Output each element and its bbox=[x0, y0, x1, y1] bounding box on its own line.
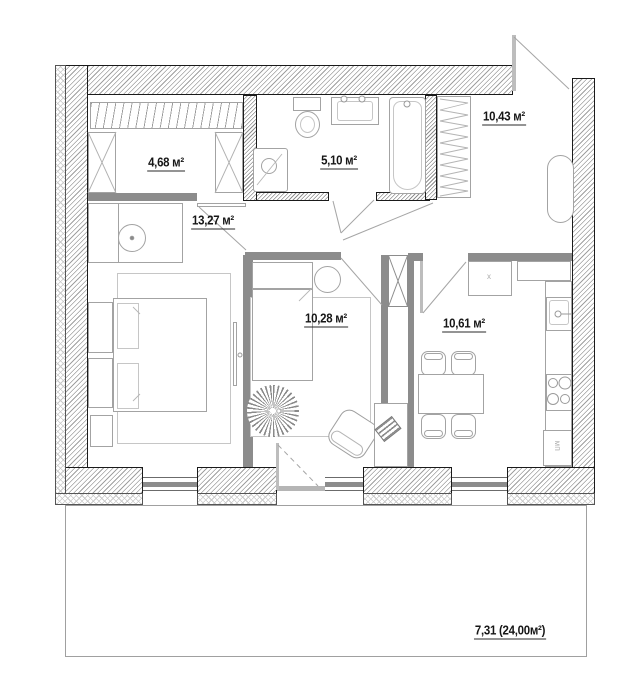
chair-4 bbox=[451, 414, 476, 439]
room-area-hallway: 10,43 м² bbox=[482, 109, 526, 126]
room-label-wardrobe: 4,68 м² bbox=[145, 155, 188, 172]
hall-closet-zigzag bbox=[438, 97, 471, 198]
wall-top bbox=[55, 65, 513, 95]
room-label-bedroom: 10,28 м² bbox=[301, 311, 351, 328]
closet-box-left bbox=[88, 132, 116, 193]
room-area-bedroom: 10,28 м² bbox=[304, 311, 348, 328]
entrance-door-leaf bbox=[512, 35, 516, 91]
bathtub-inner bbox=[393, 101, 422, 190]
partition-bath-bottom-left bbox=[256, 192, 329, 201]
room-label-kitchen: 10,61 м² bbox=[439, 316, 489, 333]
tv-panel bbox=[233, 322, 237, 386]
stool bbox=[118, 224, 146, 252]
kitchen-door-leaf bbox=[420, 261, 423, 313]
room-area-wardrobe: 4,68 м² bbox=[147, 155, 185, 172]
toilet-bowl-inner bbox=[300, 116, 315, 133]
room-area-bathroom: 5,10 м² bbox=[320, 153, 358, 170]
washbasin-inner bbox=[337, 101, 373, 121]
kitchen-sink-basin bbox=[549, 300, 569, 325]
balcony-door-leaf bbox=[276, 443, 279, 490]
wall-right bbox=[572, 78, 595, 505]
insulation-strip-b3 bbox=[363, 493, 452, 505]
chair-1 bbox=[421, 351, 446, 376]
stove bbox=[546, 374, 572, 411]
partition-kitchen-top-stub bbox=[408, 253, 423, 261]
floor-plan: x МП bbox=[0, 0, 641, 700]
double-bed-pillow-1 bbox=[117, 303, 139, 349]
partition-bedroom-top bbox=[245, 252, 341, 260]
nightstand-1 bbox=[88, 302, 113, 353]
partition-wardrobe-bottom bbox=[88, 193, 197, 201]
kitchen-cabinet-mark: x bbox=[487, 272, 491, 281]
partition-bath-hall bbox=[425, 95, 437, 200]
balcony-label: 7,31 (24,00м²) bbox=[469, 623, 551, 640]
double-bed-pillow-2 bbox=[117, 363, 139, 409]
insulation-strip-b2 bbox=[197, 493, 277, 505]
room-label-hallway: 10,43 м² bbox=[479, 109, 529, 126]
dining-table bbox=[418, 374, 484, 414]
nightstand-2 bbox=[88, 358, 113, 408]
room-area-kitchen: 10,61 м² bbox=[442, 316, 486, 333]
balcony-door-sidelight bbox=[325, 477, 363, 491]
insulation-strip-b4 bbox=[507, 493, 595, 505]
room-label-living: 13,27 м² bbox=[188, 213, 238, 230]
washing-machine-door bbox=[261, 158, 277, 174]
hallway-mirror bbox=[547, 155, 574, 223]
closet-box-right bbox=[215, 132, 243, 193]
partition-shaft-right bbox=[408, 255, 414, 467]
balcony-door-threshold bbox=[277, 486, 325, 491]
partition-kitchen-top bbox=[468, 253, 572, 261]
chair-2 bbox=[451, 351, 476, 376]
plant bbox=[247, 385, 299, 437]
insulation-strip-left bbox=[55, 65, 66, 505]
insulation-strip-b1 bbox=[55, 493, 143, 505]
single-bed-headboard bbox=[252, 262, 313, 289]
kitchen-appliance-label: МП bbox=[553, 441, 559, 451]
toilet-tank bbox=[293, 97, 321, 111]
bedside-round-table bbox=[314, 266, 341, 293]
room-label-bathroom: 5,10 м² bbox=[318, 153, 361, 170]
partition-shaft-left bbox=[381, 255, 388, 415]
room-area-living: 13,27 м² bbox=[191, 213, 235, 230]
window-kitchen bbox=[452, 477, 507, 491]
balcony-area: 7,31 (24,00м²) bbox=[474, 623, 546, 640]
single-bed bbox=[252, 289, 313, 381]
window-bedroom bbox=[143, 477, 197, 491]
nightstand-3 bbox=[90, 415, 113, 447]
chair-3 bbox=[421, 414, 446, 439]
kitchen-cabinet-top bbox=[517, 261, 571, 281]
wardrobe-door-leaf bbox=[197, 203, 246, 207]
closet-hanger-rail bbox=[90, 102, 243, 129]
vent-shaft bbox=[389, 256, 408, 307]
